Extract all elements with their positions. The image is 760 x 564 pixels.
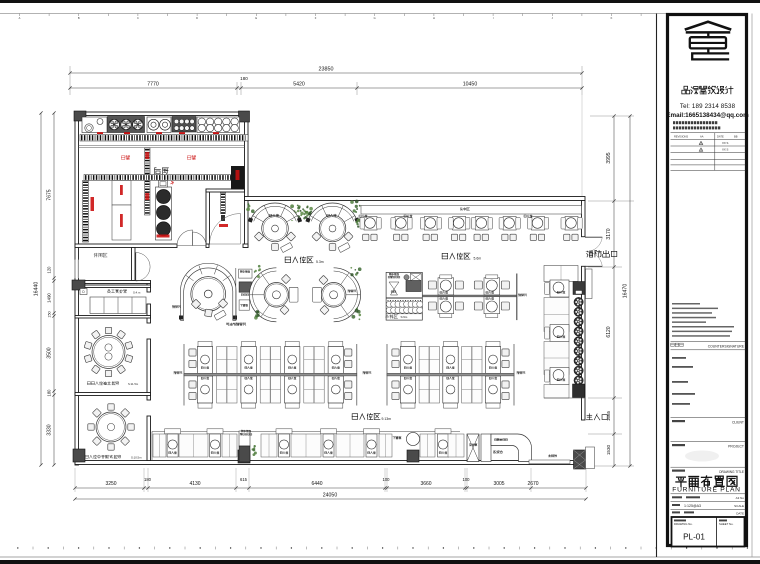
svg-text:DATE: DATE [736, 512, 744, 516]
svg-text:100: 100 [383, 477, 391, 482]
svg-text:3250: 3250 [105, 481, 116, 487]
svg-text:AA: AA [700, 134, 704, 138]
svg-text:PL-01: PL-01 [683, 533, 705, 542]
svg-text:S:4.m: S:4.m [133, 290, 141, 294]
svg-text:5.6m: 5.6m [474, 257, 482, 261]
svg-text:180: 180 [144, 477, 152, 482]
svg-text:SHEET No.: SHEET No. [719, 522, 734, 526]
svg-text:C: C [137, 16, 139, 20]
svg-text:DRAWING No.: DRAWING No. [674, 522, 693, 526]
svg-text:615: 615 [240, 477, 248, 482]
svg-text:A: A [700, 141, 702, 145]
svg-text:120: 120 [47, 266, 52, 274]
svg-text:K: K [611, 16, 613, 20]
svg-text:3170: 3170 [606, 228, 612, 239]
svg-text:DRAWING TITLE: DRAWING TITLE [719, 470, 744, 474]
svg-text:5420: 5420 [293, 82, 305, 88]
svg-text:1530: 1530 [606, 444, 611, 455]
svg-text:CLIENT: CLIENT [732, 421, 744, 425]
svg-text:FURNITURE PLAN: FURNITURE PLAN [672, 487, 740, 494]
svg-text:4130: 4130 [189, 481, 200, 487]
svg-text:5.3m: 5.3m [316, 260, 324, 264]
svg-text:BB: BB [734, 134, 738, 138]
svg-text:6120: 6120 [606, 326, 612, 337]
svg-text:7675: 7675 [47, 189, 53, 200]
svg-text:Email:1665138434@qq.com: Email:1665138434@qq.com [666, 112, 749, 119]
svg-text:16470: 16470 [623, 284, 629, 299]
svg-text:100: 100 [463, 477, 471, 482]
svg-text:9.13m: 9.13m [382, 417, 392, 421]
svg-text:7770: 7770 [147, 82, 159, 88]
svg-text:COUNTERSIGNATURE: COUNTERSIGNATURE [708, 345, 745, 349]
svg-text:REVISIONS: REVISIONS [674, 134, 688, 138]
svg-text:S:9m: S:9m [401, 315, 408, 319]
svg-text:3500: 3500 [47, 347, 53, 358]
svg-text:XX S: XX S [722, 141, 729, 145]
svg-text:A: A [19, 16, 21, 20]
svg-text:A: A [700, 148, 702, 152]
svg-text:3660: 3660 [420, 481, 431, 487]
svg-text:S:11.5m: S:11.5m [128, 382, 139, 386]
svg-text:H: H [433, 16, 435, 20]
svg-text:3995: 3995 [606, 152, 612, 163]
svg-text:1490: 1490 [47, 293, 52, 303]
svg-text:D: D [196, 16, 198, 20]
svg-text:3330: 3330 [47, 424, 53, 435]
svg-text:SCALE: SCALE [734, 504, 744, 508]
svg-text:180: 180 [240, 76, 248, 81]
svg-text:150: 150 [48, 311, 52, 317]
svg-text:A3 No: A3 No [736, 496, 745, 500]
svg-text:180: 180 [47, 389, 52, 397]
svg-text:E: E [255, 16, 257, 20]
svg-text:B: B [78, 16, 80, 20]
svg-text:16440: 16440 [34, 282, 40, 297]
svg-text:S:10.5m: S:10.5m [131, 456, 142, 460]
svg-text:G: G [374, 16, 376, 20]
svg-text:DATE: DATE [717, 134, 724, 138]
svg-text:10450: 10450 [463, 82, 478, 88]
svg-text:PROJECT: PROJECT [728, 445, 744, 449]
svg-text:Tel: 189 2314 8538: Tel: 189 2314 8538 [680, 103, 736, 110]
svg-text:24050: 24050 [323, 493, 338, 499]
svg-text:23850: 23850 [319, 67, 334, 73]
svg-text:2670: 2670 [527, 481, 538, 487]
svg-text:3005: 3005 [493, 481, 504, 487]
svg-text:1:125@A3: 1:125@A3 [684, 504, 701, 508]
svg-text:XX S: XX S [722, 147, 729, 151]
svg-text:6440: 6440 [311, 481, 322, 487]
